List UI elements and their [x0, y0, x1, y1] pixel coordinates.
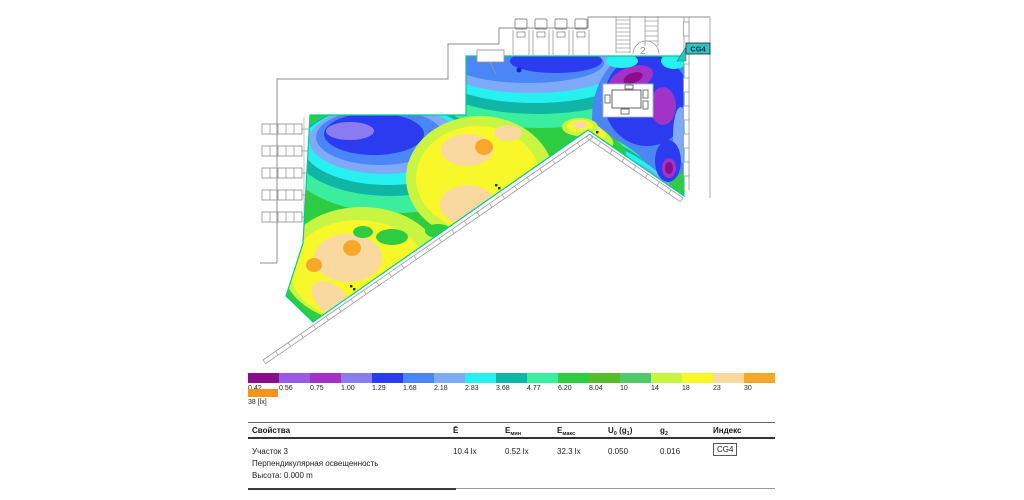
- legend-bar: 0.420.560.751.001.291.682.182.833.684.77…: [248, 373, 775, 383]
- legend-segment: 2.83: [465, 373, 496, 383]
- table-rule-bottom-light: [456, 488, 775, 489]
- legend-tick-label: 30: [744, 385, 752, 392]
- legend-overflow-swatch: [248, 389, 278, 397]
- legend-segment: 3.68: [496, 373, 527, 383]
- legend-segment: 2.18: [434, 373, 465, 383]
- staircase-symbols: [616, 16, 659, 54]
- legend-tick-label: 8.04: [589, 385, 603, 392]
- legend-tick-label: 1.68: [403, 385, 417, 392]
- value-g2: 0.016: [660, 447, 680, 456]
- chair-icon: [625, 85, 633, 89]
- legend-tick-label: 2.83: [465, 385, 479, 392]
- chair-icon: [605, 95, 610, 103]
- col-e-max: Eмакс: [557, 426, 575, 437]
- chair-icon: [621, 109, 629, 114]
- legend-segment: 14: [651, 373, 682, 383]
- value-e-max: 32.3 lx: [557, 447, 581, 456]
- legend-tick-label: 1.00: [341, 385, 355, 392]
- tag-pointer-icon: [677, 47, 686, 61]
- legend-segment: 0.42: [248, 373, 279, 383]
- value-u0: 0.050: [608, 447, 628, 456]
- legend-tick-label: 3.68: [496, 385, 510, 392]
- value-e-min: 0.52 lx: [505, 447, 529, 456]
- value-index: CG4: [713, 443, 737, 456]
- legend-tick-label: 0.56: [279, 385, 293, 392]
- table-rule-header: [248, 437, 775, 439]
- desk-symbols: [513, 19, 589, 55]
- legend-segment: 0.75: [310, 373, 341, 383]
- legend-tick-label: 4.77: [527, 385, 541, 392]
- legend-segment: 1.29: [372, 373, 403, 383]
- legend-tick-label: 2.18: [434, 385, 448, 392]
- illuminance-map[interactable]: [282, 36, 702, 326]
- legend-tick-label: 23: [713, 385, 721, 392]
- legend-segment: 23: [713, 373, 744, 383]
- legend-segment: 18: [682, 373, 713, 383]
- radiator-symbols: [262, 124, 310, 222]
- table-icon: [612, 90, 641, 108]
- legend-tick-label: 14: [651, 385, 659, 392]
- legend-segment: 1.00: [341, 373, 372, 383]
- table-rule-top: [248, 422, 775, 423]
- table-rule-bottom: [248, 488, 456, 490]
- col-g2: g2: [660, 426, 668, 437]
- legend-segment: 0.56: [279, 373, 310, 383]
- meeting-table-cutout: [603, 84, 653, 117]
- legend-tick-label: 18: [682, 385, 690, 392]
- colour-scale-legend: 0.420.560.751.001.291.682.182.833.684.77…: [248, 373, 775, 383]
- cg4-tag[interactable]: CG4: [677, 43, 710, 61]
- legend-overflow-label: 38 [lx]: [248, 399, 267, 406]
- floor-plan: 2 CG4: [0, 0, 1024, 500]
- legend-segment: 30: [744, 373, 775, 383]
- chair-icon: [643, 101, 648, 109]
- row-type: Перпендикулярная освещенность: [252, 459, 378, 468]
- value-e-avg: 10.4 lx: [453, 447, 477, 456]
- legend-segment: 8.04: [589, 373, 620, 383]
- legend-segment: 1.68: [403, 373, 434, 383]
- col-e-min: Eмин: [505, 426, 521, 437]
- legend-segment: 10: [620, 373, 651, 383]
- legend-tick-label: 6.20: [558, 385, 572, 392]
- row-name: Участок 3: [252, 447, 288, 456]
- relux-report-view: 2 CG4 0.420.560.75: [0, 0, 1024, 500]
- col-e-avg: Ē: [453, 426, 458, 435]
- index-badge[interactable]: CG4: [713, 443, 737, 456]
- legend-segment: 4.77: [527, 373, 558, 383]
- stair-label: 2: [640, 46, 646, 57]
- row-height: Высота: 0.000 m: [252, 471, 313, 480]
- legend-segment: 6.20: [558, 373, 589, 383]
- legend-tick-label: 0.75: [310, 385, 324, 392]
- col-properties: Свойства: [252, 426, 290, 435]
- legend-tick-label: 1.29: [372, 385, 386, 392]
- col-index: Индекс: [713, 426, 741, 435]
- chair-icon: [643, 90, 648, 98]
- tag-label: CG4: [690, 45, 706, 54]
- col-u0: U0 (g1): [608, 426, 632, 437]
- legend-tick-label: 10: [620, 385, 628, 392]
